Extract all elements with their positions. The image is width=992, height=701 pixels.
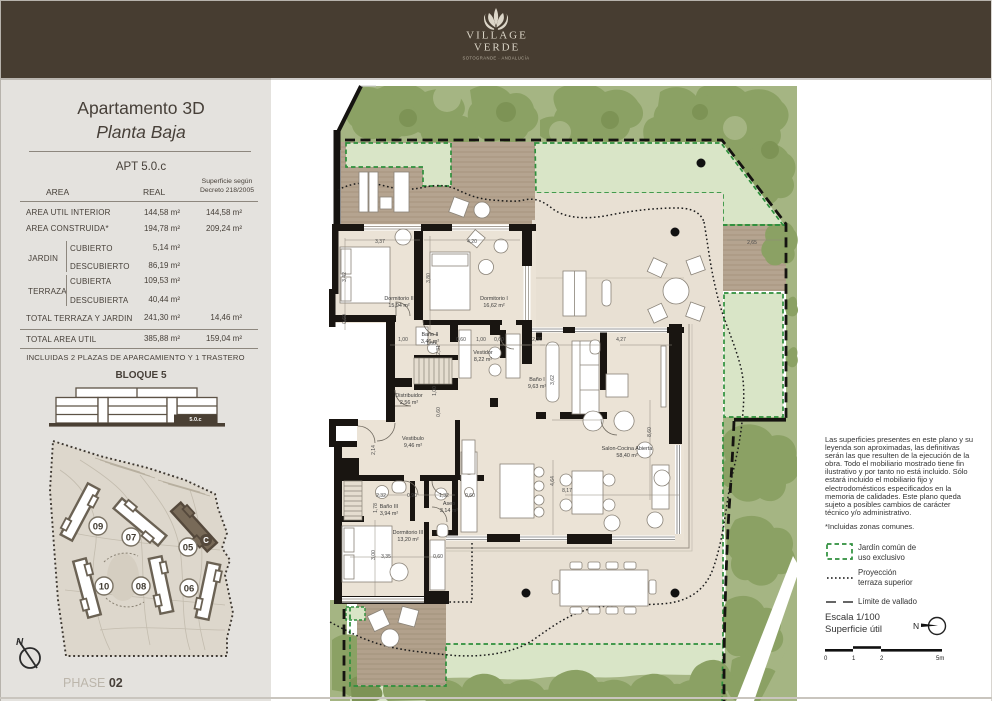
svg-text:3,00: 3,00 (371, 550, 377, 560)
svg-text:Baño II: Baño II (421, 332, 438, 338)
svg-text:Salon-Cocina Abierta: Salon-Cocina Abierta (602, 446, 653, 452)
svg-text:0,60: 0,60 (436, 407, 442, 417)
svg-text:1,00: 1,00 (398, 337, 408, 343)
svg-text:10: 10 (99, 582, 110, 593)
svg-text:8,22 m²: 8,22 m² (474, 357, 492, 363)
svg-text:0,60: 0,60 (342, 314, 348, 324)
svg-text:5.0.c: 5.0.c (189, 417, 201, 423)
svg-text:C: C (203, 536, 209, 545)
svg-text:Vestidor: Vestidor (473, 350, 493, 356)
svg-text:8,17: 8,17 (562, 488, 572, 494)
svg-text:4,20: 4,20 (467, 239, 477, 245)
svg-text:1,50: 1,50 (426, 341, 436, 347)
svg-text:9,46 m²: 9,46 m² (404, 443, 422, 449)
svg-text:Distribuidor: Distribuidor (395, 393, 422, 399)
svg-text:58,40 m²: 58,40 m² (616, 453, 637, 459)
svg-text:VILLAGE: VILLAGE (466, 30, 528, 42)
svg-text:4,27: 4,27 (616, 337, 626, 343)
svg-text:1,00: 1,00 (432, 386, 438, 396)
svg-text:SOTOGRANDE · ANDALUCÍA: SOTOGRANDE · ANDALUCÍA (462, 56, 529, 61)
svg-text:15,94 m²: 15,94 m² (388, 303, 409, 309)
svg-text:2,31: 2,31 (436, 345, 442, 355)
svg-text:Aseo: Aseo (443, 501, 455, 507)
svg-text:13,20 m²: 13,20 m² (397, 537, 418, 543)
svg-text:9,63 m²: 9,63 m² (528, 384, 546, 390)
svg-text:08: 08 (136, 582, 147, 593)
svg-text:Dormitorio III: Dormitorio III (393, 530, 424, 536)
svg-text:1,00: 1,00 (476, 337, 486, 343)
svg-text:3,14 m²: 3,14 m² (440, 508, 458, 514)
svg-text:3,94 m²: 3,94 m² (380, 511, 398, 517)
svg-text:06: 06 (184, 584, 195, 595)
svg-text:2,32: 2,32 (376, 493, 386, 499)
svg-text:Baño III: Baño III (380, 504, 399, 510)
svg-text:3,42: 3,42 (342, 272, 348, 282)
svg-text:3,62: 3,62 (550, 375, 556, 385)
svg-text:3,80: 3,80 (426, 273, 432, 283)
svg-text:0,60: 0,60 (465, 493, 475, 499)
svg-text:3,35: 3,35 (381, 554, 391, 560)
svg-text:0,90: 0,90 (407, 493, 417, 499)
svg-text:0,60: 0,60 (494, 337, 504, 343)
svg-text:2,36: 2,36 (532, 337, 542, 343)
svg-text:09: 09 (93, 522, 104, 533)
svg-text:3,37: 3,37 (375, 239, 385, 245)
svg-text:2,56 m²: 2,56 m² (400, 400, 418, 406)
svg-text:VERDE: VERDE (474, 42, 520, 54)
svg-text:07: 07 (126, 533, 137, 544)
svg-text:0,60: 0,60 (456, 337, 466, 343)
svg-text:Dormitorio II: Dormitorio II (384, 296, 413, 302)
svg-text:05: 05 (183, 543, 194, 554)
svg-text:1,78: 1,78 (373, 503, 379, 513)
svg-text:2,65: 2,65 (747, 240, 757, 246)
svg-text:Dormitorio I: Dormitorio I (480, 296, 508, 302)
svg-text:Vestibulo: Vestibulo (402, 436, 424, 442)
svg-text:16,62 m²: 16,62 m² (483, 303, 504, 309)
svg-text:8,60: 8,60 (647, 427, 653, 437)
svg-text:0,60: 0,60 (433, 554, 443, 560)
svg-text:4,64: 4,64 (550, 476, 556, 486)
svg-text:Baño I: Baño I (529, 377, 545, 383)
svg-text:2,14: 2,14 (371, 445, 377, 455)
svg-text:1,32: 1,32 (439, 493, 449, 499)
